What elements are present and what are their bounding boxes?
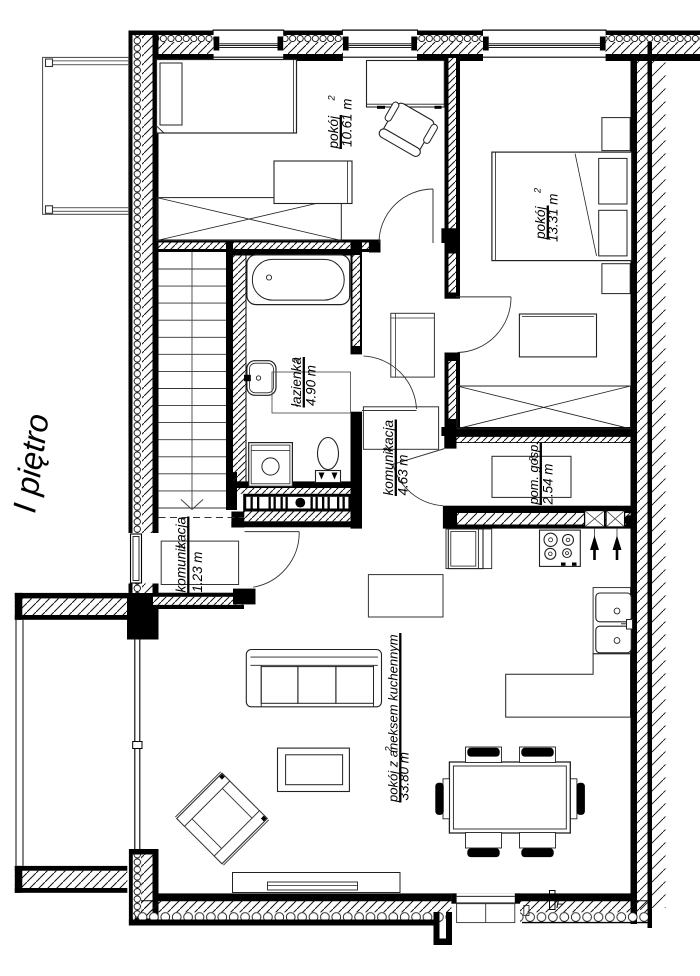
svg-text:komunikacja: komunikacja xyxy=(174,517,189,593)
svg-text:33.80 m: 33.80 m xyxy=(397,752,412,800)
svg-text:F: F xyxy=(556,897,564,911)
svg-text:13.31 m: 13.31 m xyxy=(546,194,561,242)
svg-text:4.90 m: 4.90 m xyxy=(304,365,319,406)
svg-text:pom. gosp.: pom. gosp. xyxy=(526,441,541,505)
svg-text:1.23 m: 1.23 m xyxy=(190,552,205,593)
svg-text:2: 2 xyxy=(177,544,187,550)
svg-text:2: 2 xyxy=(533,188,543,194)
svg-text:10.61 m: 10.61 m xyxy=(340,99,355,147)
svg-text:2: 2 xyxy=(528,456,538,462)
svg-text:łazienka: łazienka xyxy=(289,357,304,407)
svg-text:4.63 m: 4.63 m xyxy=(396,455,411,496)
svg-text:2.54 m: 2.54 m xyxy=(541,464,556,506)
svg-text:2: 2 xyxy=(383,447,393,453)
svg-text:2: 2 xyxy=(291,358,301,364)
svg-text:komunikacja: komunikacja xyxy=(381,420,396,496)
svg-text:2: 2 xyxy=(327,95,337,101)
svg-text:2: 2 xyxy=(384,746,394,752)
